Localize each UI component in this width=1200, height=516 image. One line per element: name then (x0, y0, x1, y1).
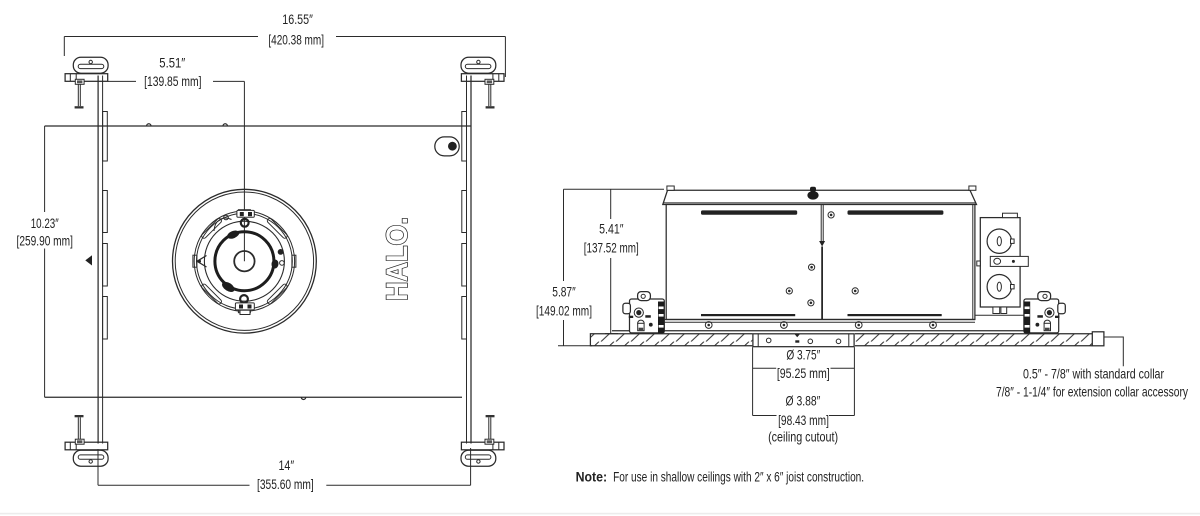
svg-text:Ø 3.75″: Ø 3.75″ (786, 346, 820, 362)
svg-text:0.5″ - 7/8″ with standard coll: 0.5″ - 7/8″ with standard collar (1023, 366, 1164, 382)
svg-text:7/8″ - 1-1/4″ for extension co: 7/8″ - 1-1/4″ for extension collar acces… (996, 384, 1188, 400)
svg-text:[259.90 mm]: [259.90 mm] (17, 232, 73, 248)
svg-text:Note:For use in shallow ceilin: Note:For use in shallow ceilings with 2″… (576, 468, 865, 484)
svg-text:[95.25 mm]: [95.25 mm] (777, 365, 830, 381)
svg-text:[420.38 mm]: [420.38 mm] (268, 32, 324, 48)
svg-text:[98.43 mm]: [98.43 mm] (778, 412, 829, 428)
svg-text:[139.85 mm]: [139.85 mm] (144, 73, 201, 89)
svg-text:5.87″: 5.87″ (552, 283, 575, 299)
svg-text:(ceiling cutout): (ceiling cutout) (768, 429, 838, 445)
svg-text:5.41″: 5.41″ (599, 220, 623, 236)
svg-text:[137.52 mm]: [137.52 mm] (584, 240, 639, 256)
svg-text:[355.60 mm]: [355.60 mm] (257, 476, 314, 492)
svg-text:10.23″: 10.23″ (31, 215, 59, 231)
svg-text:[149.02 mm]: [149.02 mm] (536, 303, 592, 319)
svg-text:HALO.: HALO. (381, 217, 414, 301)
svg-text:16.55″: 16.55″ (282, 11, 313, 27)
svg-text:Ø 3.88″: Ø 3.88″ (786, 392, 821, 408)
svg-text:14″: 14″ (278, 457, 294, 473)
svg-text:5.51″: 5.51″ (159, 54, 185, 70)
